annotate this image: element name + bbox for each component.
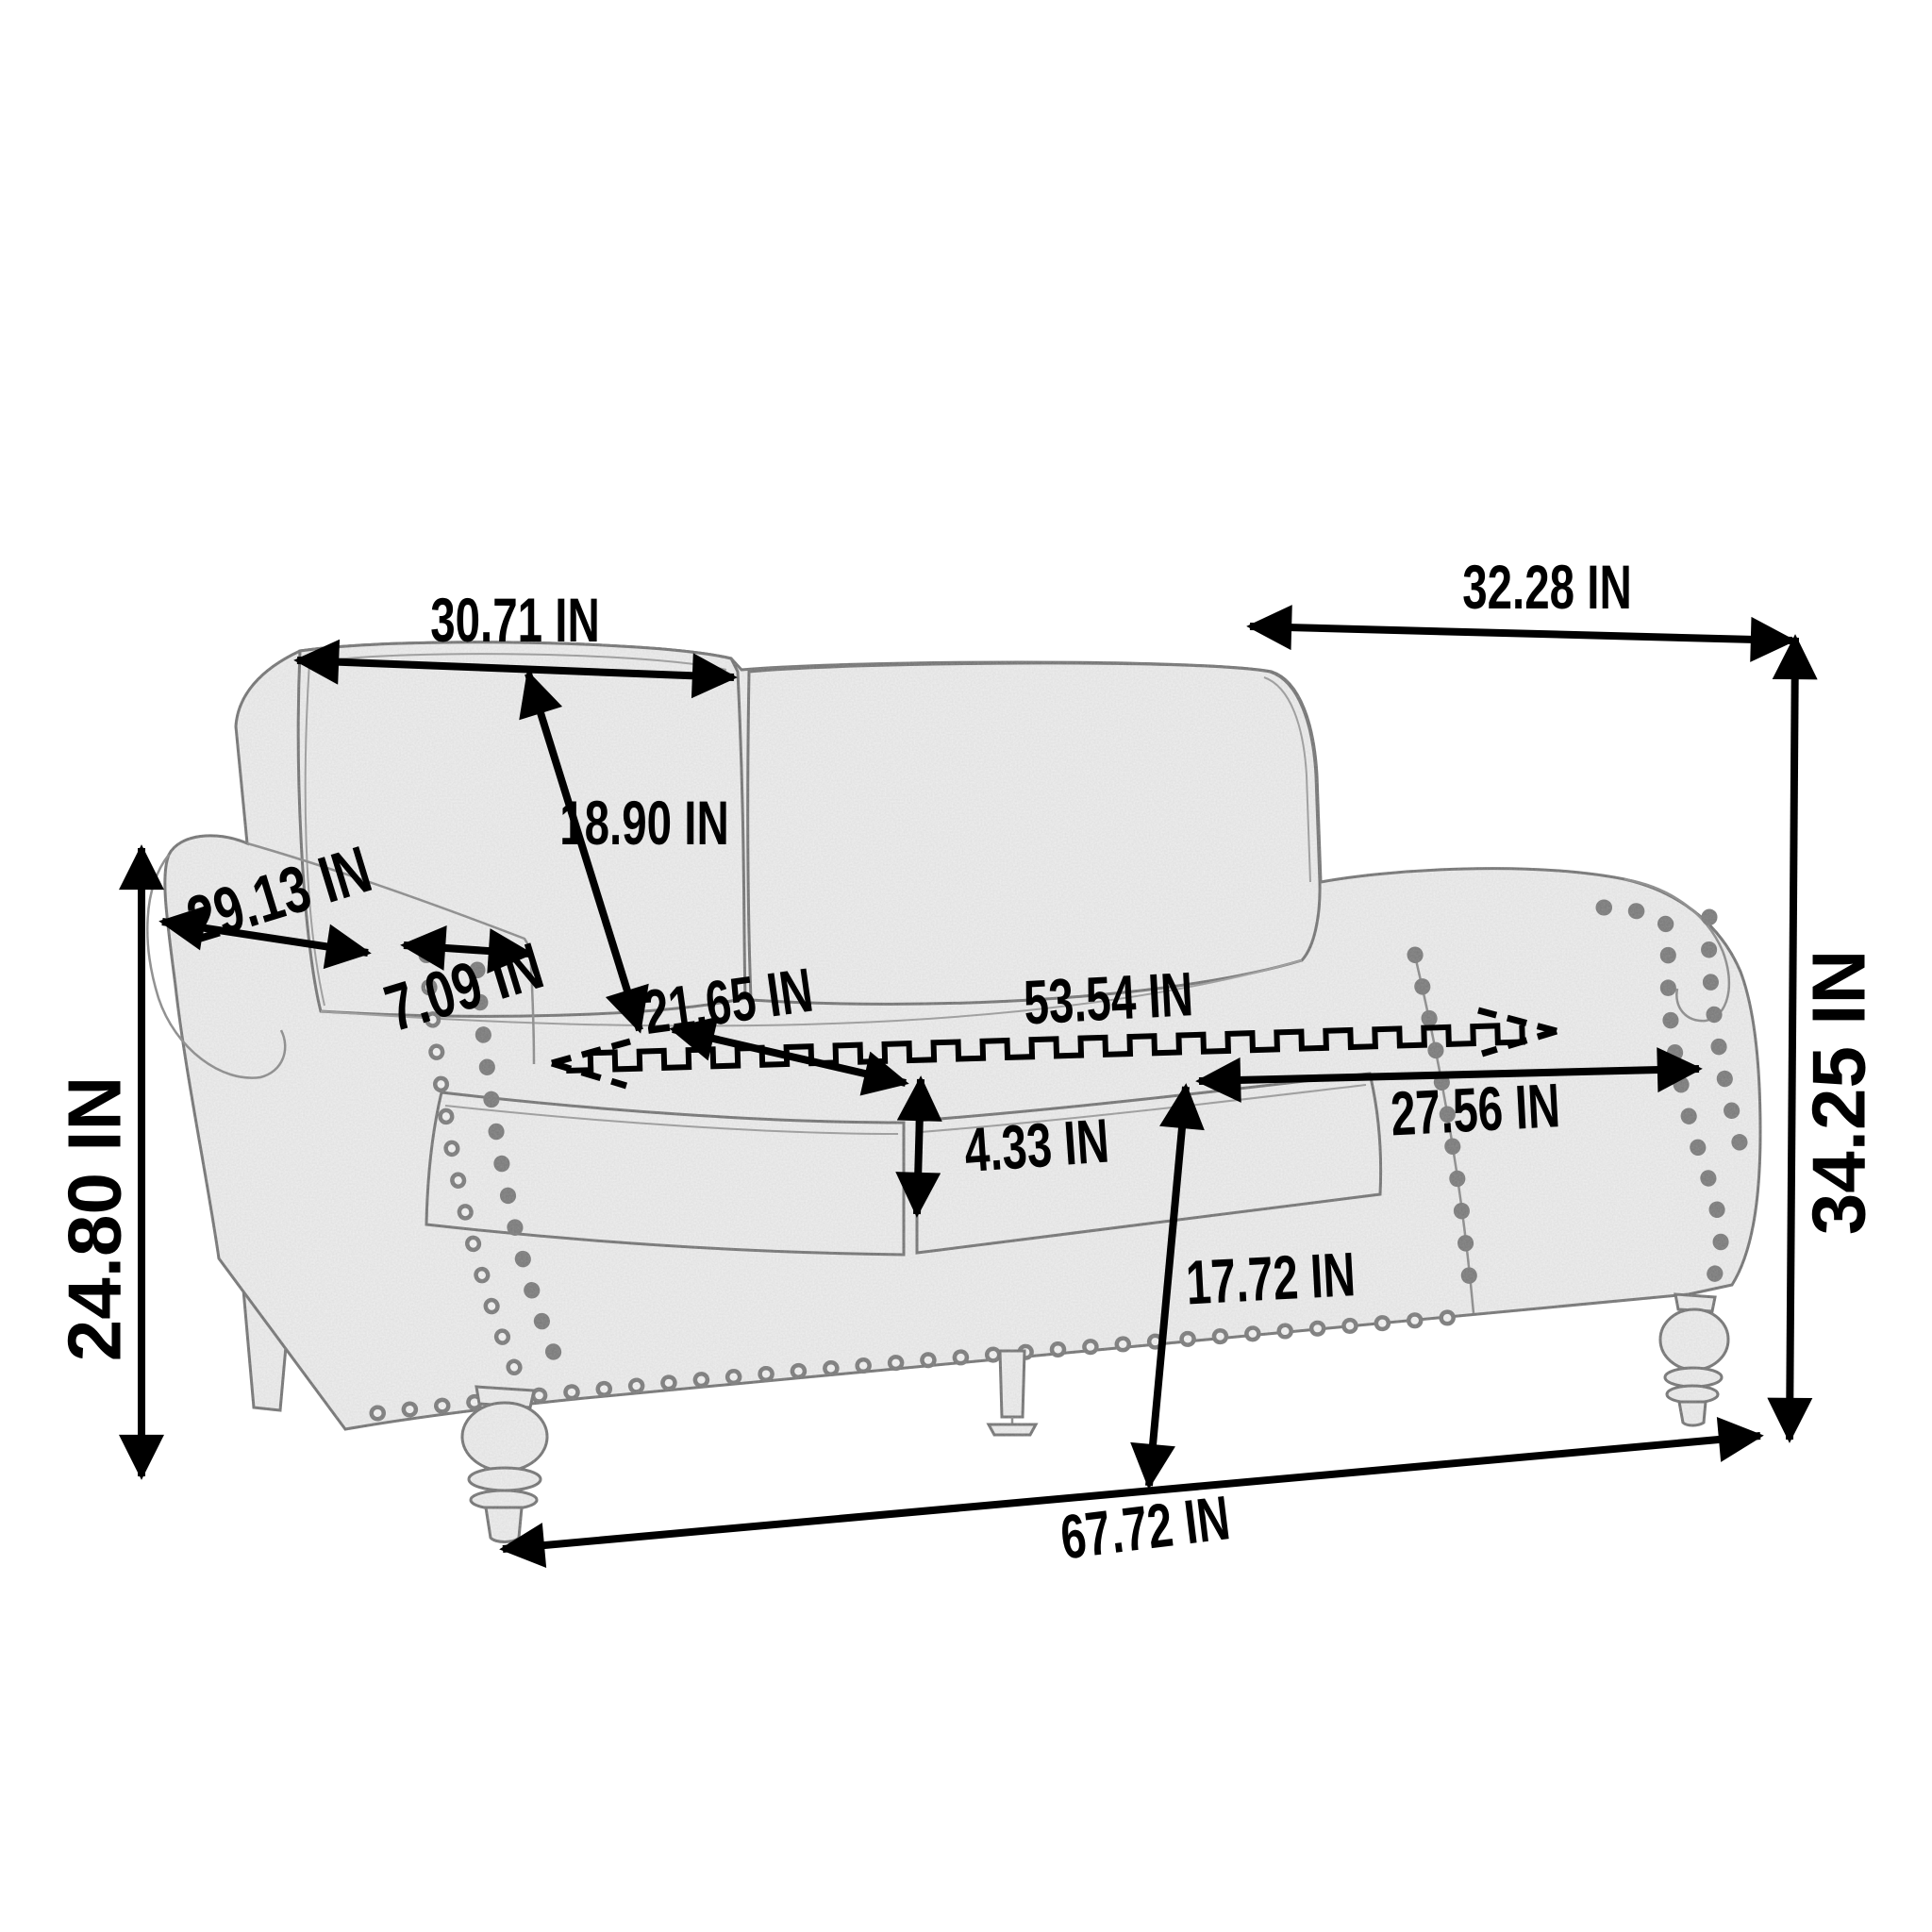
dim-overall-depth-arrow <box>1250 626 1792 641</box>
dim-overall-height-arrow <box>1790 638 1795 1440</box>
dim-overall-height-label: 34.25 IN <box>1797 950 1881 1235</box>
dim-seat-cushion-thickness-arrow <box>917 1079 921 1214</box>
dim-arm-height-label: 24.80 IN <box>53 1076 137 1361</box>
sofa-dimension-diagram: 30.71 IN 32.28 IN 18.90 IN 29.13 IN 7.09… <box>0 0 1932 1932</box>
back-cushion-right <box>748 663 1320 1004</box>
front-right-leg <box>1660 1294 1728 1425</box>
dim-seat-cushion-thickness-label: 4.33 IN <box>962 1107 1111 1186</box>
dim-overall-depth-label: 32.28 IN <box>1462 553 1632 622</box>
diagram-canvas: 30.71 IN 32.28 IN 18.90 IN 29.13 IN 7.09… <box>0 0 1932 1932</box>
dim-seat-width-label: 53.54 IN <box>1022 960 1194 1039</box>
dim-back-cushion-height-label: 18.90 IN <box>559 789 729 858</box>
center-support-leg <box>989 1351 1036 1435</box>
dim-seat-height-label: 17.72 IN <box>1184 1241 1357 1319</box>
dim-seat-cushion-width-label: 27.56 IN <box>1389 1072 1561 1150</box>
dim-back-cushion-width-label: 30.71 IN <box>430 586 600 655</box>
